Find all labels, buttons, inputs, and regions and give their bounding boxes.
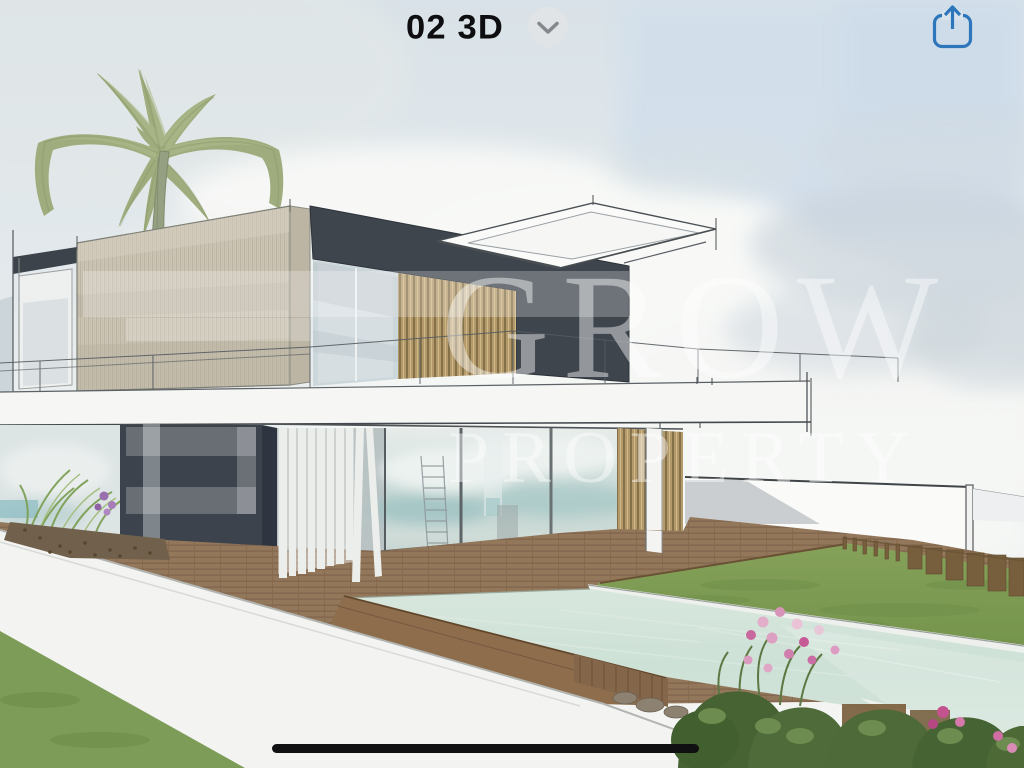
svg-text:PROPERTY: PROPERTY	[448, 417, 922, 499]
svg-text:02 3D: 02 3D	[406, 9, 504, 47]
svg-text:GROW: GROW	[441, 244, 951, 410]
